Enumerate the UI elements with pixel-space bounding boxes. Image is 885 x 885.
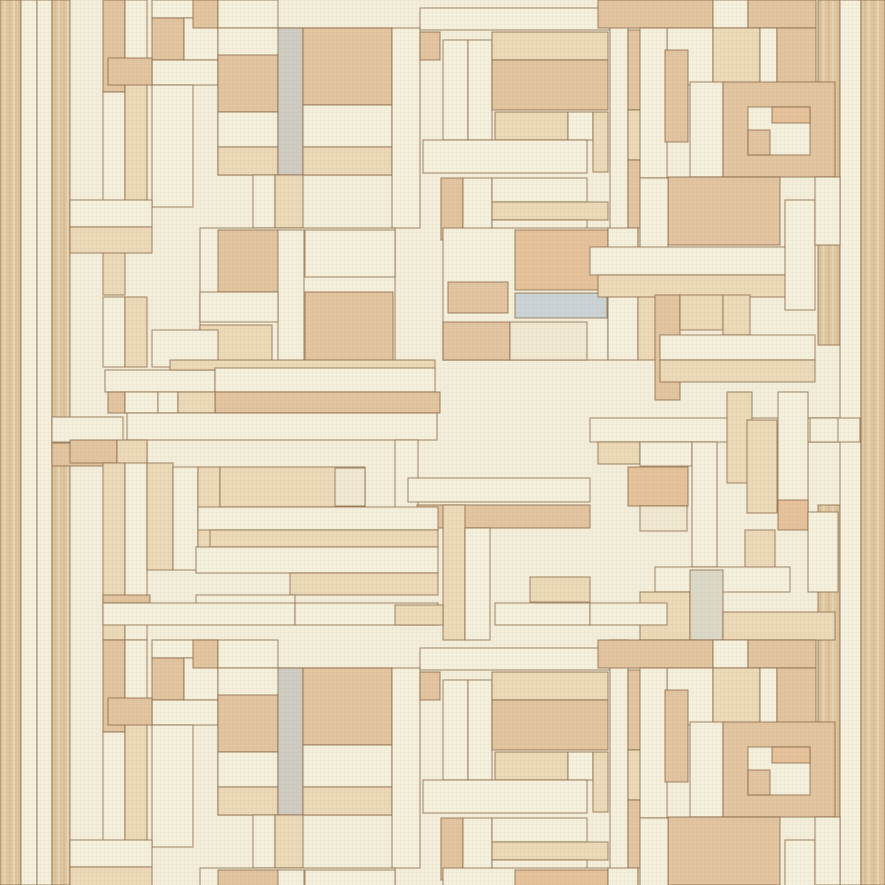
wallpaper-pattern bbox=[0, 0, 885, 885]
pattern-canvas bbox=[0, 0, 885, 885]
